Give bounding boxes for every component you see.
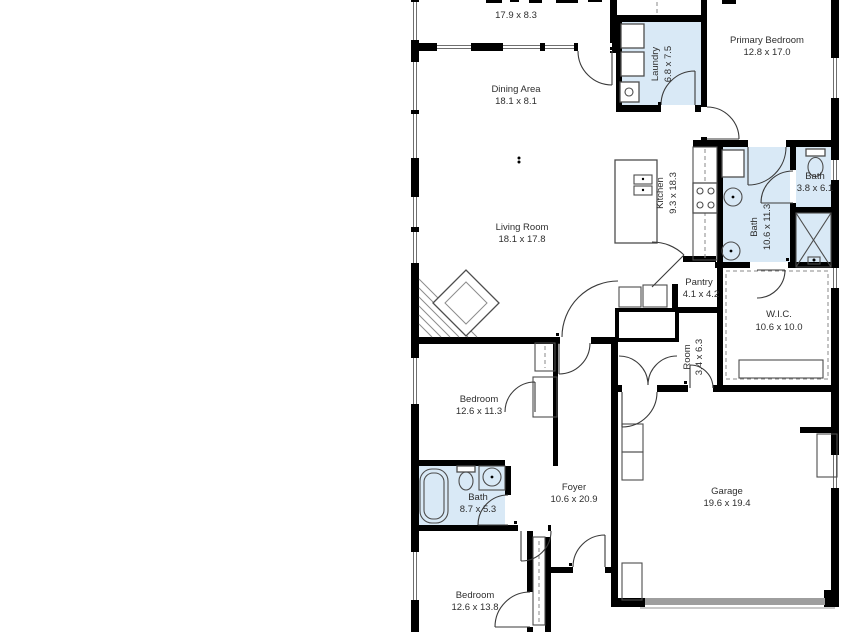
garage-shelf: [622, 563, 642, 600]
door-swing: [559, 343, 590, 374]
clipped-text-fragment: [722, 0, 736, 4]
door-swing: [707, 107, 739, 139]
toilet-tank: [457, 466, 475, 472]
water-heater: [622, 424, 643, 452]
wall: [717, 147, 723, 390]
furnace: [622, 452, 643, 480]
door-stop: [610, 47, 613, 50]
room-dims-foyer: 10.6 x 20.9: [550, 494, 597, 505]
clipped-text-fragment: [588, 0, 602, 2]
door-swing: [495, 592, 530, 627]
door-stop: [514, 521, 517, 524]
room-dims-room: 3.4 x 6.3: [694, 339, 705, 375]
wall: [790, 147, 796, 267]
window: [831, 58, 839, 98]
door-swing: [757, 270, 785, 298]
door-swing: [619, 356, 648, 385]
shower-head: [813, 259, 816, 262]
room-label-room: Room: [682, 344, 693, 369]
door-swing: [648, 356, 677, 385]
window: [503, 43, 540, 51]
window: [545, 43, 574, 51]
window: [411, 2, 419, 40]
room-dims-bath2: 3.8 x 6.1: [797, 183, 833, 194]
window: [831, 160, 839, 180]
garage-door: [640, 598, 835, 609]
wall: [824, 590, 839, 607]
room-label-bedroom1: Bedroom: [460, 394, 499, 405]
opening: [578, 43, 612, 51]
window: [411, 552, 419, 600]
room-label-bath-main: Bath: [749, 217, 760, 237]
room-dims-bedroom1: 12.6 x 11.3: [456, 406, 502, 417]
kitchen-island: [615, 160, 657, 243]
ceiling-marker: [518, 157, 521, 160]
wall: [796, 207, 838, 213]
room-label-kitchen: Kitchen: [655, 177, 666, 209]
room-label-bath2: Bath: [805, 171, 825, 182]
wall: [800, 427, 831, 433]
room-dims-primary-bedroom: 12.8 x 17.0: [743, 47, 790, 58]
door-stop: [744, 141, 747, 144]
stove: [693, 183, 717, 213]
bath-closet: [722, 150, 744, 177]
room-label-living-room: Living Room: [496, 222, 549, 233]
wall: [616, 15, 707, 22]
bath-sink-drain: [491, 476, 494, 479]
window: [411, 197, 419, 227]
opening: [560, 337, 591, 344]
island-knob: [642, 189, 644, 191]
room-label-wic: W.I.C.: [766, 309, 792, 320]
door-swing: [578, 51, 612, 85]
room-dims-bath3: 8.7 x 5.3: [460, 504, 496, 515]
window: [437, 43, 471, 51]
opening: [527, 592, 533, 627]
clipped-text-fragment: [529, 0, 542, 3]
room-label-bedroom2: Bedroom: [456, 590, 495, 601]
room-label-pantry: Pantry: [685, 277, 713, 288]
door-stop: [658, 102, 661, 105]
room-dims-kitchen: 9.3 x 18.3: [668, 172, 679, 214]
opening: [505, 495, 511, 525]
room-dims-bath-main: 10.6 x 11.3: [762, 204, 773, 250]
opening: [701, 107, 707, 137]
opening: [622, 385, 657, 392]
opening: [661, 105, 695, 112]
window: [831, 268, 839, 288]
door-swing: [652, 242, 684, 287]
door-swing: [573, 535, 605, 567]
island-knob: [642, 178, 644, 180]
room-dims-living-room: 18.1 x 17.8: [498, 234, 545, 245]
door-swing: [622, 392, 657, 427]
hall-closet: [617, 310, 677, 340]
window: [831, 455, 839, 488]
opening-swing: [562, 281, 618, 337]
window: [411, 114, 419, 158]
room-label-upper-dims: 17.9 x 8.3: [495, 10, 537, 21]
floorplan-canvas: 17.9 x 8.3 Dining Area 18.1 x 8.1 Laundr…: [0, 0, 843, 632]
room-label-foyer: Foyer: [562, 482, 586, 493]
hall-cabinet: [619, 287, 641, 307]
wall: [411, 460, 505, 466]
bath-sink-drain: [732, 196, 735, 199]
floorplan-svg: 17.9 x 8.3 Dining Area 18.1 x 8.1 Laundr…: [0, 0, 843, 632]
room-dims-bedroom2: 12.6 x 13.8: [451, 602, 498, 613]
toilet-tank: [806, 149, 825, 156]
wic-bench: [739, 360, 823, 378]
wall: [678, 307, 717, 313]
wall: [545, 537, 551, 632]
fireplace: [419, 270, 499, 337]
washer: [621, 24, 644, 48]
clipped-text-fragment: [486, 0, 502, 3]
ceiling-marker: [518, 161, 521, 164]
window: [411, 358, 419, 404]
door-swing: [505, 382, 535, 412]
clipped-text-fragment: [510, 0, 519, 2]
dryer: [621, 52, 644, 76]
bath3-floor: [419, 466, 505, 525]
window: [411, 232, 419, 263]
opening: [748, 140, 786, 147]
room-label-garage: Garage: [711, 486, 743, 497]
opening: [688, 385, 713, 392]
door-stop: [569, 563, 572, 566]
room-label-laundry: Laundry: [650, 47, 661, 82]
laundry-sink: [620, 82, 639, 102]
opening: [750, 262, 788, 268]
wall: [683, 256, 716, 262]
clipped-text-fragment: [556, 0, 578, 3]
opening: [573, 567, 605, 573]
door-stop: [684, 381, 687, 384]
wall: [611, 598, 645, 607]
room-dims-dining: 18.1 x 8.1: [495, 96, 537, 107]
opening: [790, 170, 796, 203]
room-label-dining: Dining Area: [491, 84, 541, 95]
wall: [611, 337, 618, 607]
door-stop: [556, 333, 559, 336]
opening: [518, 525, 548, 531]
room-dims-laundry: 6.8 x 7.5: [663, 46, 674, 82]
bath-sink-drain: [730, 250, 733, 253]
room-dims-wic: 10.6 x 10.0: [755, 322, 802, 333]
room-dims-garage: 19.6 x 19.4: [703, 498, 750, 509]
room-dims-pantry: 4.1 x 4.2: [683, 289, 719, 300]
door-stop: [786, 258, 789, 261]
window: [411, 62, 419, 110]
hall-cabinet: [643, 285, 667, 307]
room-label-primary-bedroom: Primary Bedroom: [730, 35, 804, 46]
room-label-bath3: Bath: [468, 492, 488, 503]
